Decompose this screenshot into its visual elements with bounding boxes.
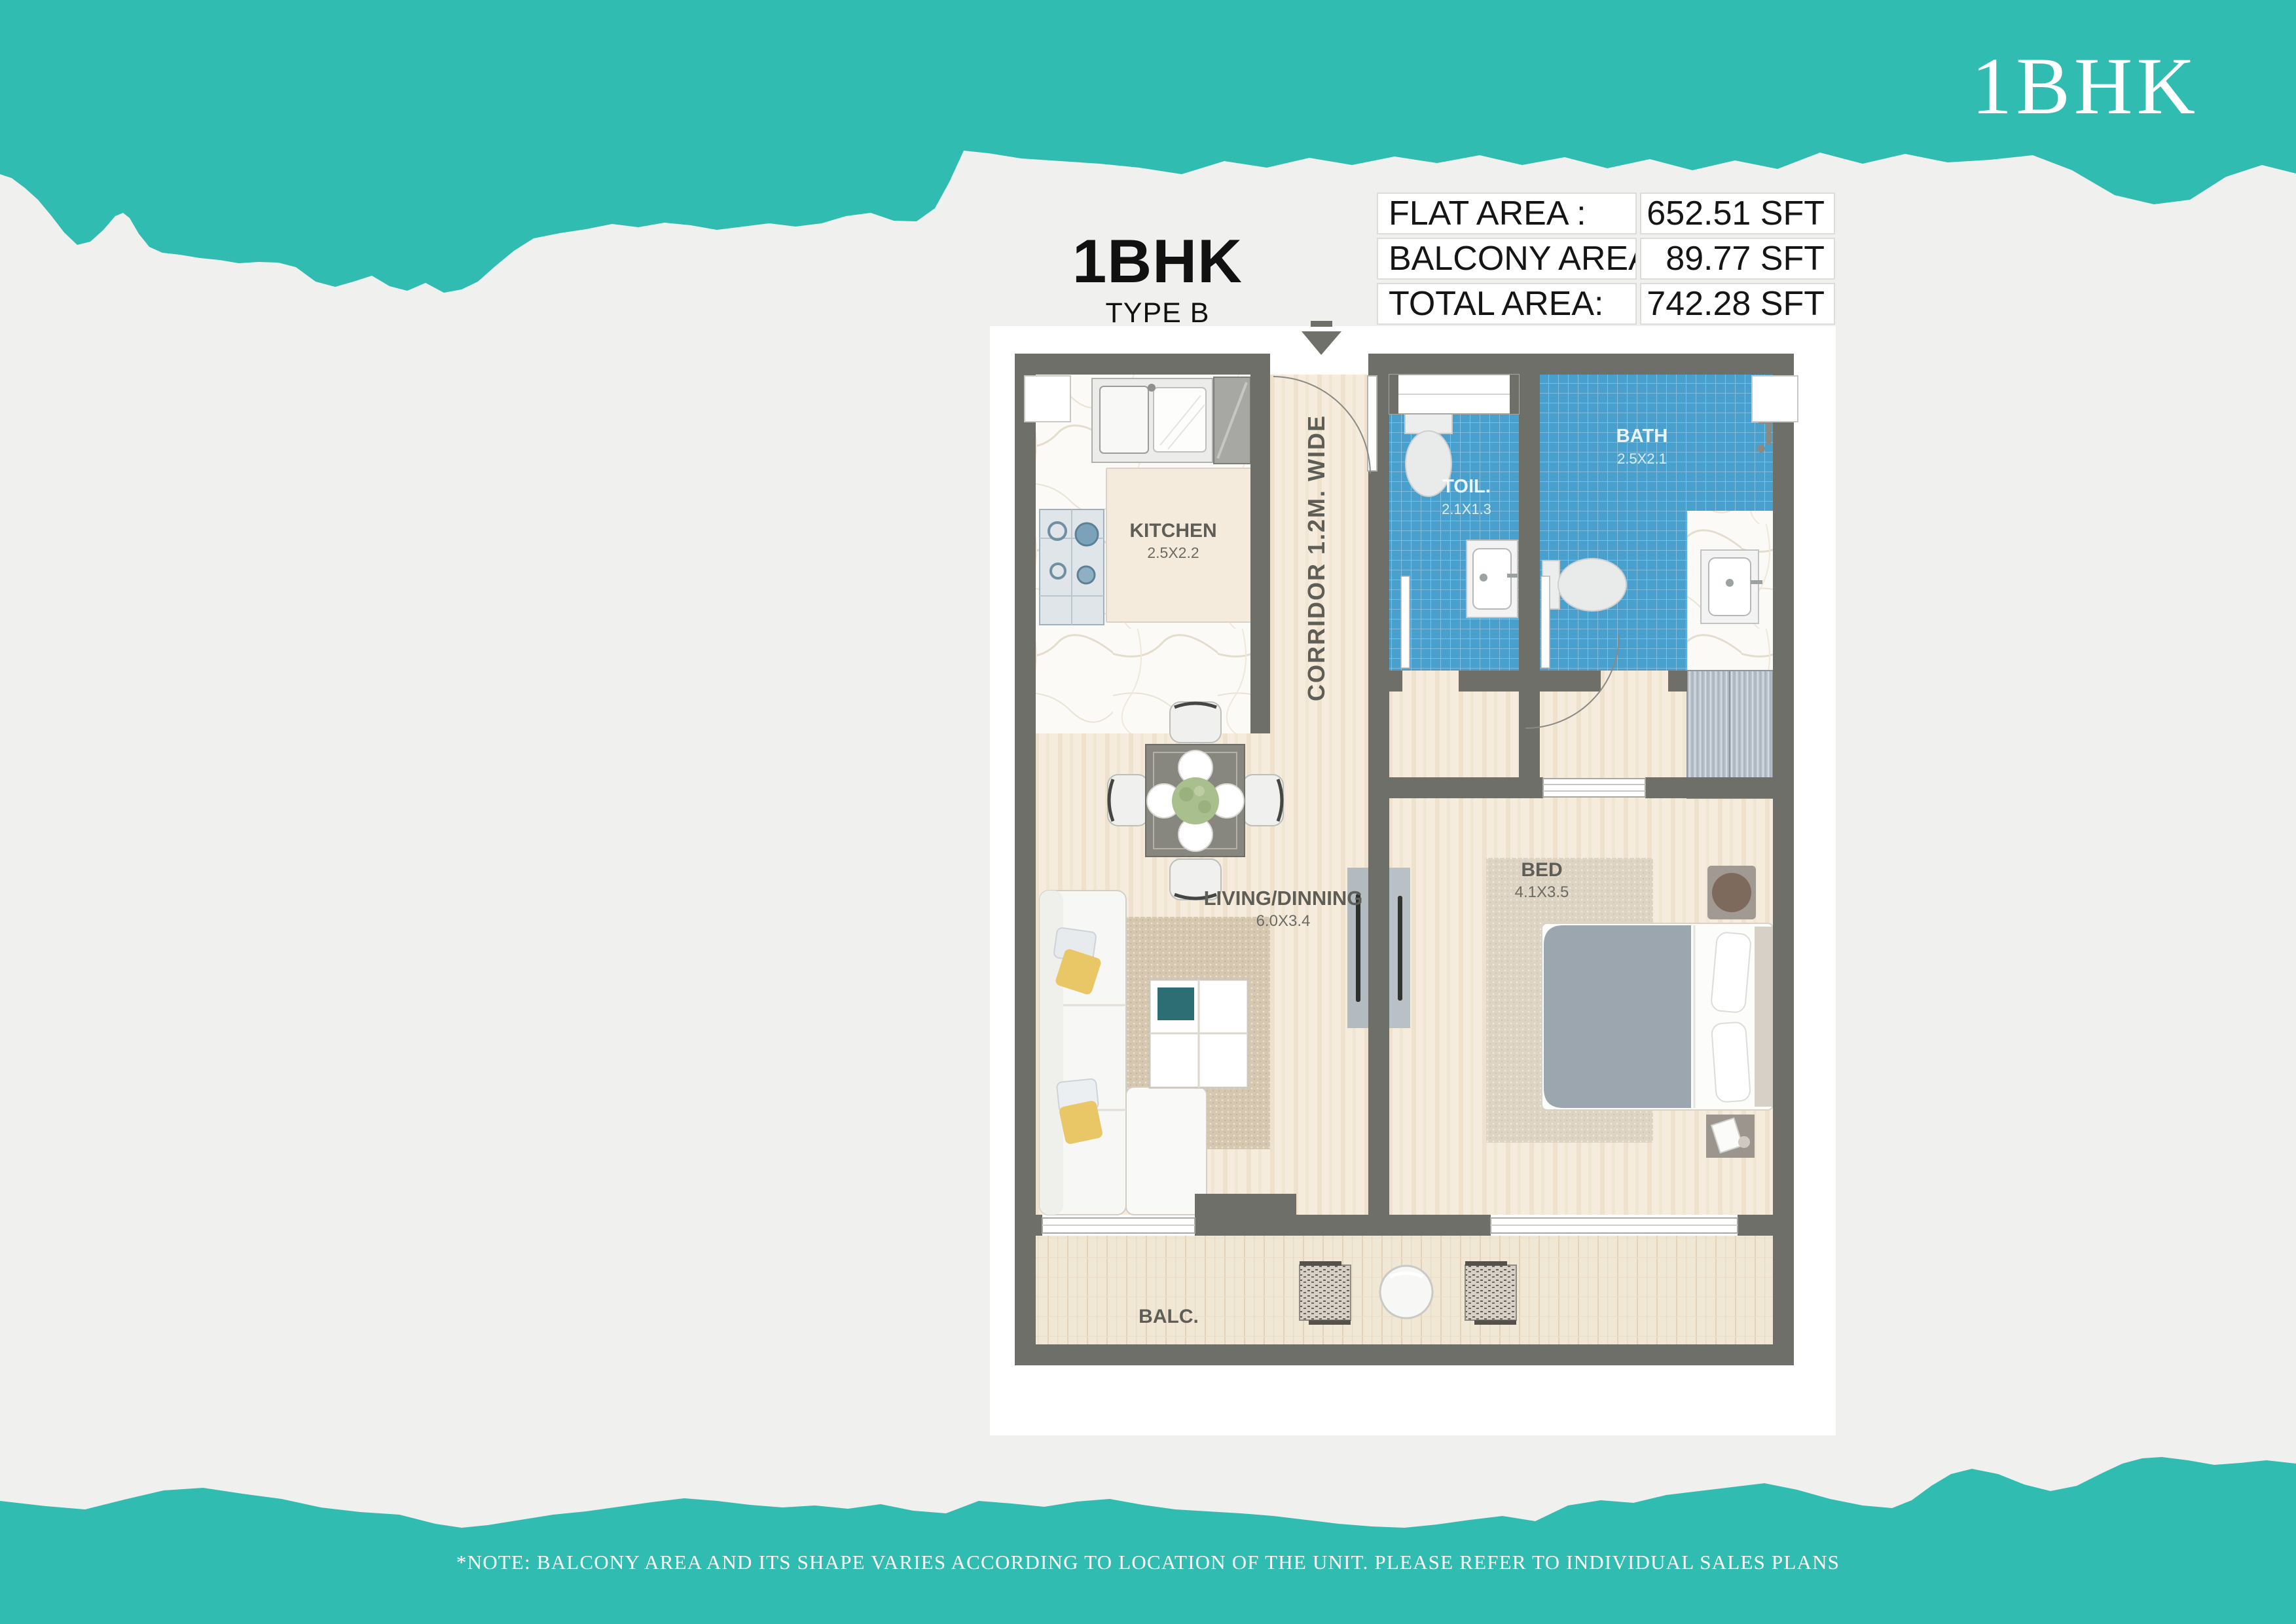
bedroom-dims: 4.1X3.5 [1515, 883, 1569, 901]
wall-notch [1025, 376, 1070, 422]
plan-title: 1BHK [1046, 231, 1269, 292]
tv-icon [1398, 896, 1402, 1001]
tray-icon [1157, 987, 1194, 1020]
toilet-dims: 2.1X1.3 [1442, 501, 1491, 517]
wall-notch [1752, 376, 1798, 422]
living-dims: 6.0X3.4 [1256, 912, 1311, 930]
bath-wc-icon [1542, 559, 1626, 611]
toilet-window [1389, 375, 1519, 414]
balcony-area-label: BALCONY AREA : [1377, 238, 1637, 280]
toilet-sink [1467, 540, 1518, 618]
brand-wordmark: 1BHK [1971, 46, 2199, 127]
nightstand [1706, 1115, 1755, 1158]
ac-unit [1300, 1261, 1351, 1325]
bedroom-wall [1645, 777, 1773, 798]
bath-label: BATH [1616, 426, 1667, 447]
headboard [1755, 927, 1773, 1107]
bedroom-sliding-door [1543, 779, 1645, 797]
entry-arrow-icon [1302, 321, 1341, 355]
plant-centerpiece-icon [1172, 777, 1219, 824]
pillow-icon [1711, 1022, 1751, 1102]
flat-area-value: 652.51 SFT [1640, 193, 1835, 234]
pillow-icon [1711, 932, 1751, 1013]
floorplan: KITCHEN 2.5X2.2 CORRIDOR 1.2M. WIDE TOIL… [1008, 314, 1813, 1428]
stove-icon [1040, 509, 1104, 625]
flat-area-label: FLAT AREA : [1377, 193, 1637, 234]
kitchen-label: KITCHEN [1129, 520, 1216, 542]
coffee-table [1150, 980, 1248, 1088]
bottom-band-shape [0, 1457, 2296, 1624]
bedroom-label: BED [1521, 859, 1562, 881]
kitchen-corridor-wall [1250, 375, 1270, 733]
toilet-label: TOIL. [1442, 476, 1491, 497]
bath-sink [1701, 550, 1762, 623]
balcony-label: BALC. [1139, 1306, 1199, 1327]
bedside-table [1707, 866, 1756, 919]
balcony-table [1380, 1266, 1432, 1318]
bottom-teal-band [0, 1428, 2296, 1624]
balcony-area-value: 89.77 SFT [1640, 238, 1835, 280]
central-wall [1368, 375, 1389, 1218]
bath-dims: 2.5X2.1 [1617, 451, 1667, 467]
ac-unit [1465, 1261, 1516, 1325]
footer-note: *NOTE: BALCONY AREA AND ITS SHAPE VARIES… [0, 1551, 2296, 1574]
faucet-icon [1726, 579, 1734, 587]
balcony-wall [1195, 1215, 1491, 1236]
kitchen-appliance [1214, 377, 1250, 464]
living-label: LIVING/DINNING [1204, 887, 1363, 910]
faucet-icon [1148, 384, 1156, 392]
bedroom-wall [1389, 777, 1543, 798]
living-balcony-window [1042, 1218, 1195, 1233]
faucet-icon [1480, 574, 1487, 581]
tv-icon [1356, 894, 1360, 1002]
corridor-label: CORRIDOR 1.2M. WIDE [1303, 415, 1330, 701]
bath-door-leaf [1541, 576, 1550, 668]
brochure-page: 1BHK 1BHK TYPE B FLAT AREA : 652.51 SFT … [0, 0, 2296, 1624]
toilet-door-leaf [1401, 576, 1410, 668]
kitchen-dims: 2.5X2.2 [1147, 544, 1199, 561]
kitchen-sink [1092, 378, 1212, 462]
toilet-bath-divider [1519, 375, 1540, 671]
bed [1542, 923, 1773, 1110]
bedroom-balcony-window [1491, 1218, 1738, 1233]
area-table: FLAT AREA : 652.51 SFT BALCONY AREA : 89… [1377, 193, 1835, 325]
yellow-pillow-icon [1059, 1100, 1104, 1145]
